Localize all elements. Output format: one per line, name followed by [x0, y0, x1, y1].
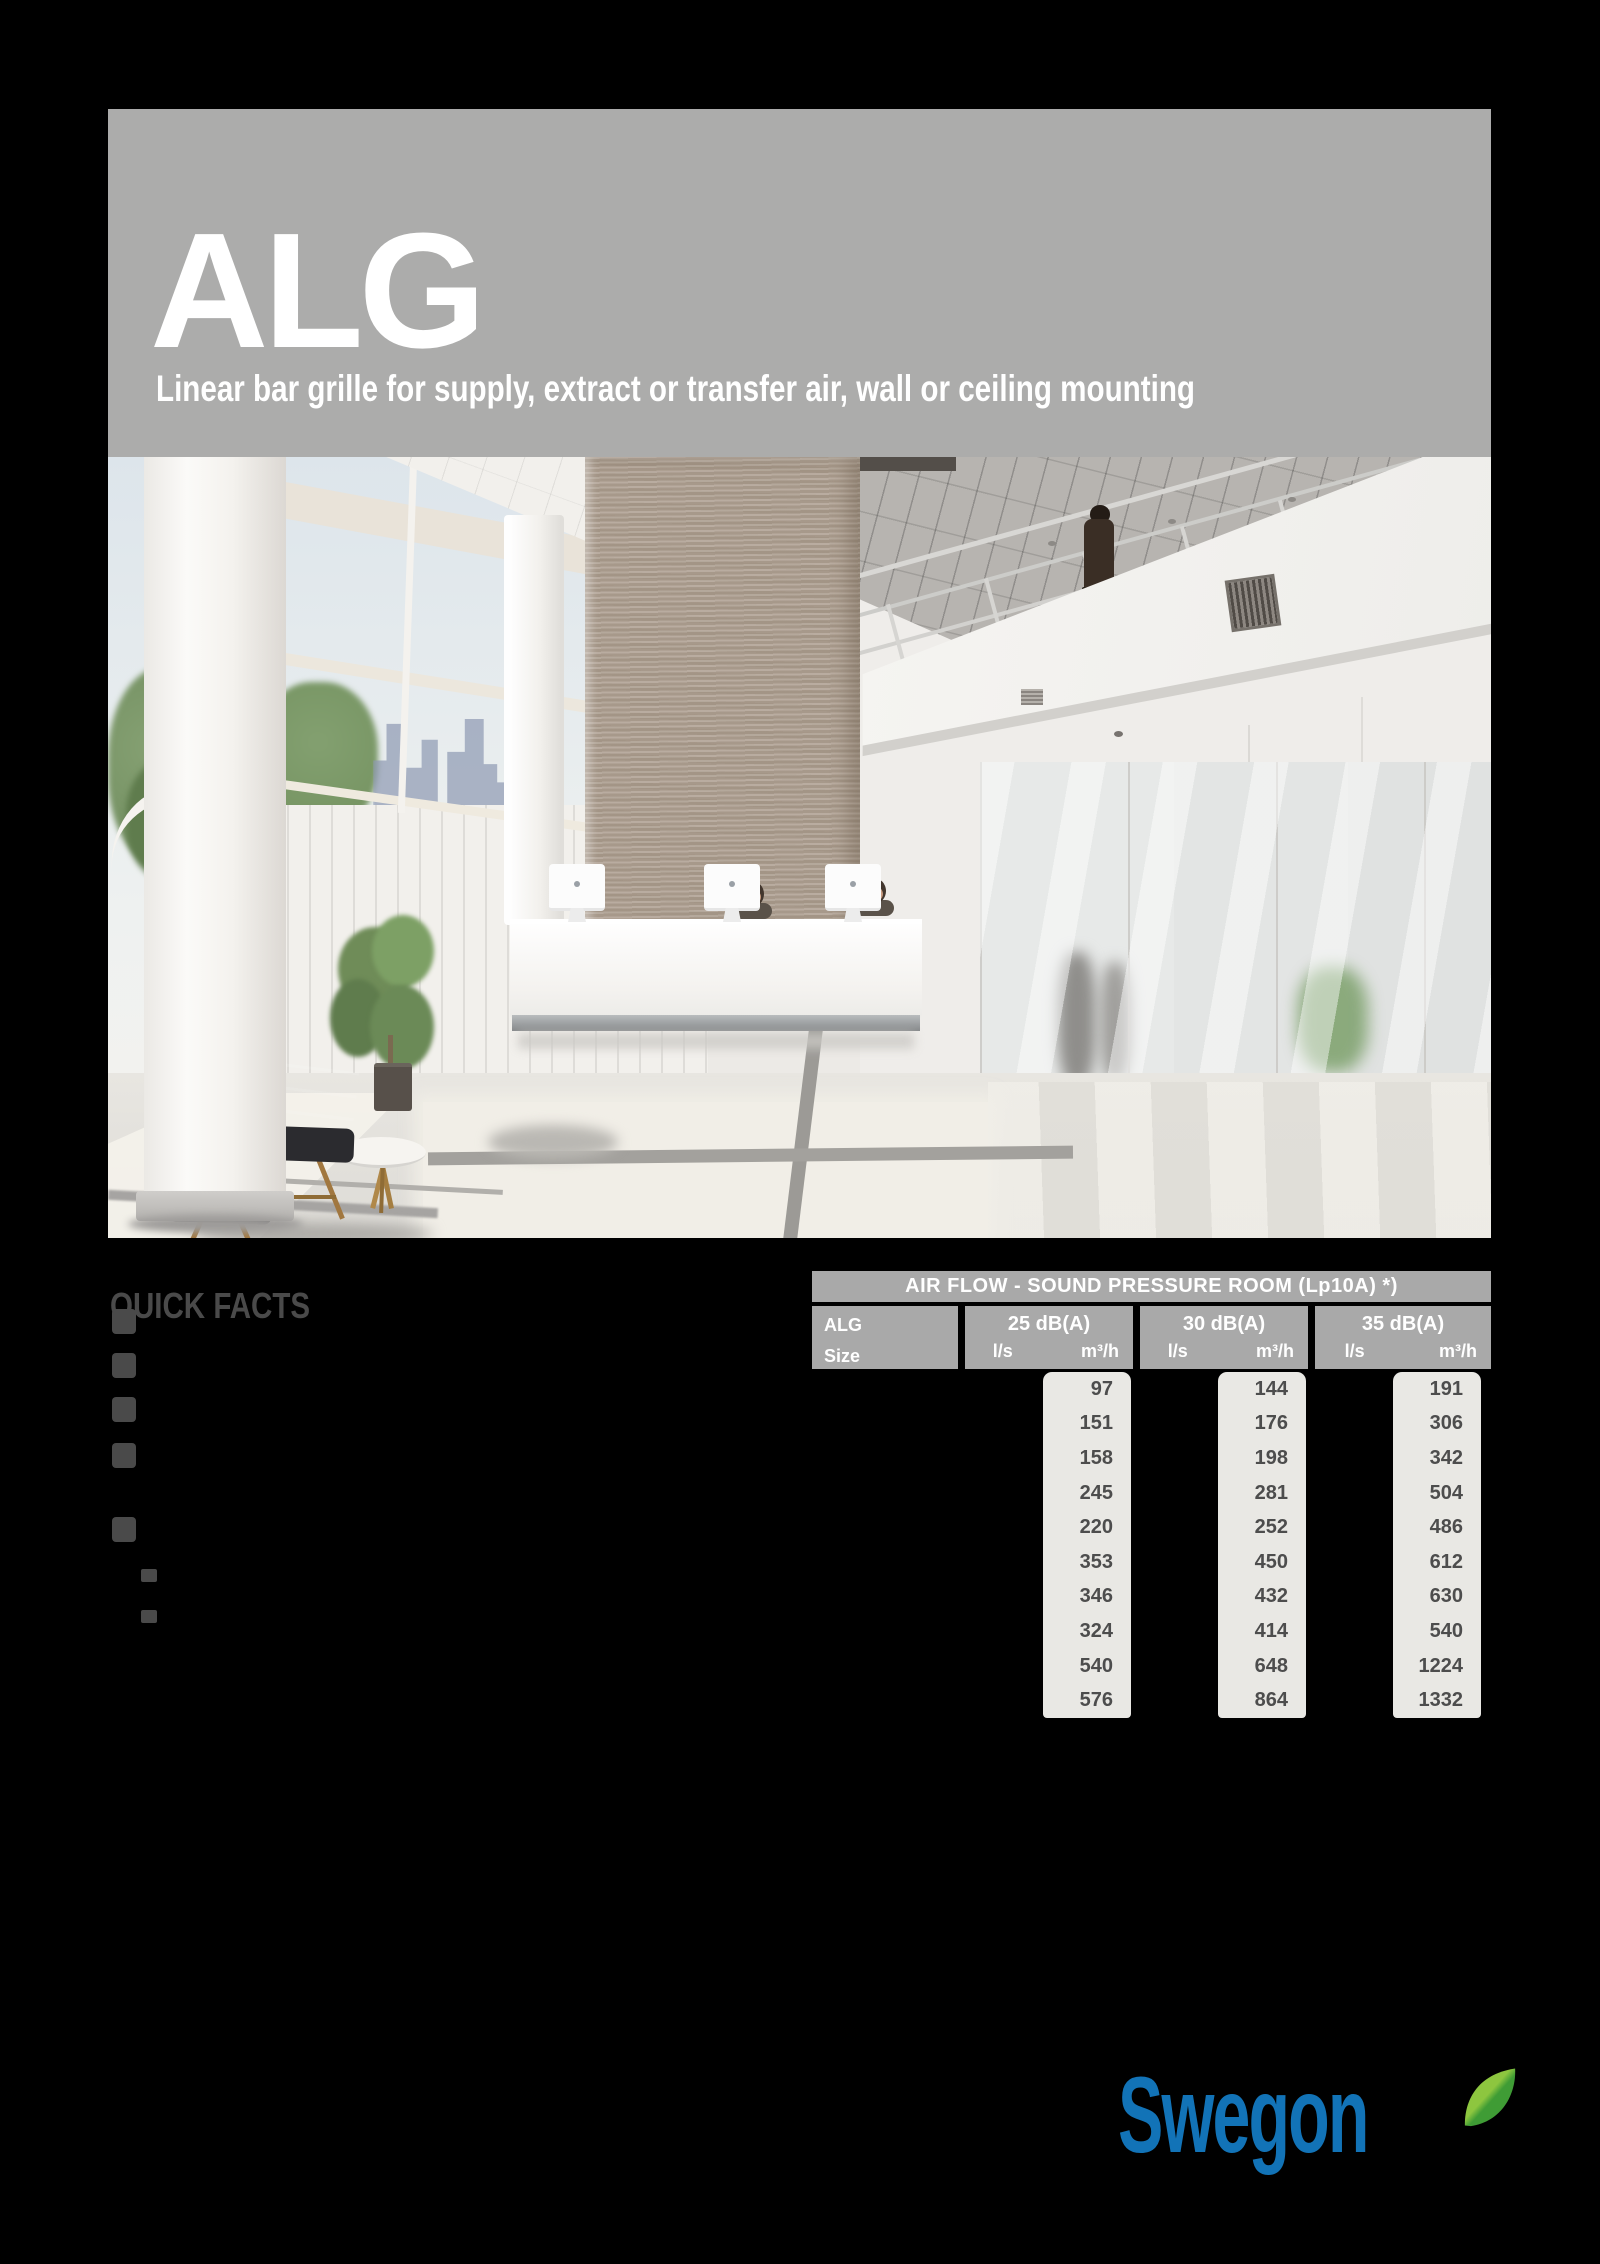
page-title: ALG [150, 209, 481, 373]
airflow-value: 486 [1393, 1510, 1481, 1545]
apple-logo-icon [729, 881, 735, 887]
photo-imac [704, 864, 760, 922]
airflow-values-30db: 144176198281252450432414648864 [1218, 1372, 1306, 1718]
bullet-list [112, 1309, 142, 1549]
airflow-value: 414 [1218, 1614, 1306, 1649]
photo-table-leg [379, 1163, 385, 1213]
airflow-value: 158 [1043, 1441, 1131, 1476]
airflow-value: 176 [1218, 1407, 1306, 1442]
airflow-value: 252 [1218, 1510, 1306, 1545]
photo-big-column [144, 457, 286, 1219]
bullet-square-icon [112, 1443, 136, 1468]
photo-floor-reflection [988, 1082, 1491, 1238]
airflow-value: 864 [1218, 1683, 1306, 1718]
photo-downlight [1048, 541, 1056, 546]
photo-imac [825, 864, 881, 922]
airflow-value: 648 [1218, 1649, 1306, 1684]
airflow-value: 97 [1043, 1372, 1131, 1407]
photo-downlight [1114, 731, 1123, 737]
apple-logo-icon [574, 881, 580, 887]
airflow-value: 504 [1393, 1476, 1481, 1511]
photo-imac-stand [723, 908, 741, 922]
bullet-square-icon [112, 1309, 136, 1334]
photo-imac-screen [549, 864, 605, 911]
airflow-value: 432 [1218, 1580, 1306, 1615]
photo-downlight [1288, 497, 1296, 502]
airflow-value: 450 [1218, 1545, 1306, 1580]
photo-plant-pot [374, 1063, 412, 1111]
unit-flow-label: l/s [1315, 1341, 1394, 1362]
photo-floor-mat [423, 1102, 988, 1238]
photo-chair-leg [316, 1158, 345, 1219]
photo-imac-screen [704, 864, 760, 911]
airflow-group-label: 35 dB(A) [1315, 1306, 1491, 1336]
photo-imac [549, 864, 605, 922]
airflow-row-header-line2: Size [812, 1347, 958, 1365]
airflow-table-title: AIR FLOW - SOUND PRESSURE ROOM (Lp10A) *… [812, 1271, 1491, 1302]
airflow-value: 245 [1043, 1476, 1131, 1511]
airflow-row-header: ALG Size [812, 1306, 958, 1369]
unit-volume-label: m³/h [1216, 1341, 1308, 1362]
airflow-value: 281 [1218, 1476, 1306, 1511]
airflow-value: 353 [1043, 1545, 1131, 1580]
sub-bullet-list [141, 1569, 161, 1629]
airflow-value: 342 [1393, 1441, 1481, 1476]
photo-reception-desk [510, 919, 922, 1019]
airflow-value: 191 [1393, 1372, 1481, 1407]
swegon-logo: Swegon [1118, 2058, 1538, 2188]
page-subtitle: Linear bar grille for supply, extract or… [156, 367, 1195, 411]
photo-downlight [1168, 519, 1176, 524]
leaf-icon [1461, 2061, 1520, 2132]
airflow-value: 540 [1393, 1614, 1481, 1649]
sub-bullet-square-icon [141, 1569, 157, 1582]
airflow-group-30db: 30 dB(A) l/s m³/h [1140, 1306, 1308, 1369]
airflow-group-35db: 35 dB(A) l/s m³/h [1315, 1306, 1491, 1369]
airflow-values-25db: 97151158245220353346324540576 [1043, 1372, 1131, 1718]
photo-plant-foliage [370, 985, 434, 1069]
photo-imac-stand [568, 908, 586, 922]
unit-volume-label: m³/h [1394, 1341, 1491, 1362]
unit-flow-label: l/s [965, 1341, 1041, 1362]
photo-imac-screen [825, 864, 881, 911]
document-page: ALG Linear bar grille for supply, extrac… [0, 0, 1600, 2264]
airflow-values-35db: 19130634250448661263054012241332 [1393, 1372, 1481, 1718]
airflow-value: 346 [1043, 1580, 1131, 1615]
photo-imac-stand [844, 908, 862, 922]
airflow-value: 198 [1218, 1441, 1306, 1476]
photo-air-grille [1225, 574, 1282, 632]
unit-volume-label: m³/h [1041, 1341, 1133, 1362]
airflow-value: 540 [1043, 1649, 1131, 1684]
airflow-group-label: 25 dB(A) [965, 1306, 1133, 1336]
photo-chair-shadow [488, 1125, 618, 1159]
airflow-value: 306 [1393, 1407, 1481, 1442]
airflow-value: 630 [1393, 1580, 1481, 1615]
header-band: ALG Linear bar grille for supply, extrac… [108, 109, 1491, 457]
airflow-row-header-line1: ALG [812, 1316, 958, 1334]
bullet-square-icon [112, 1517, 136, 1542]
photo-desk-reflection [518, 1033, 914, 1049]
airflow-value: 612 [1393, 1545, 1481, 1580]
photo-desk-plinth [512, 1015, 920, 1031]
photo-small-vent [1021, 689, 1043, 705]
sub-bullet-square-icon [141, 1610, 157, 1623]
unit-flow-label: l/s [1140, 1341, 1216, 1362]
bullet-square-icon [112, 1353, 136, 1378]
swegon-logo-text: Swegon [1118, 2058, 1367, 2171]
airflow-value: 576 [1043, 1683, 1131, 1718]
airflow-value: 1332 [1393, 1683, 1481, 1718]
airflow-value: 1224 [1393, 1649, 1481, 1684]
photo-column-foot-shadow [128, 1215, 303, 1233]
apple-logo-icon [850, 881, 856, 887]
airflow-value: 151 [1043, 1407, 1131, 1442]
airflow-value: 144 [1218, 1372, 1306, 1407]
photo-plant-foliage [372, 915, 434, 987]
photo-ceiling-slot [860, 457, 956, 471]
hero-photo [108, 457, 1491, 1238]
airflow-value: 220 [1043, 1510, 1131, 1545]
airflow-group-25db: 25 dB(A) l/s m³/h [965, 1306, 1133, 1369]
airflow-value: 324 [1043, 1614, 1131, 1649]
airflow-group-label: 30 dB(A) [1140, 1306, 1308, 1336]
bullet-square-icon [112, 1397, 136, 1422]
